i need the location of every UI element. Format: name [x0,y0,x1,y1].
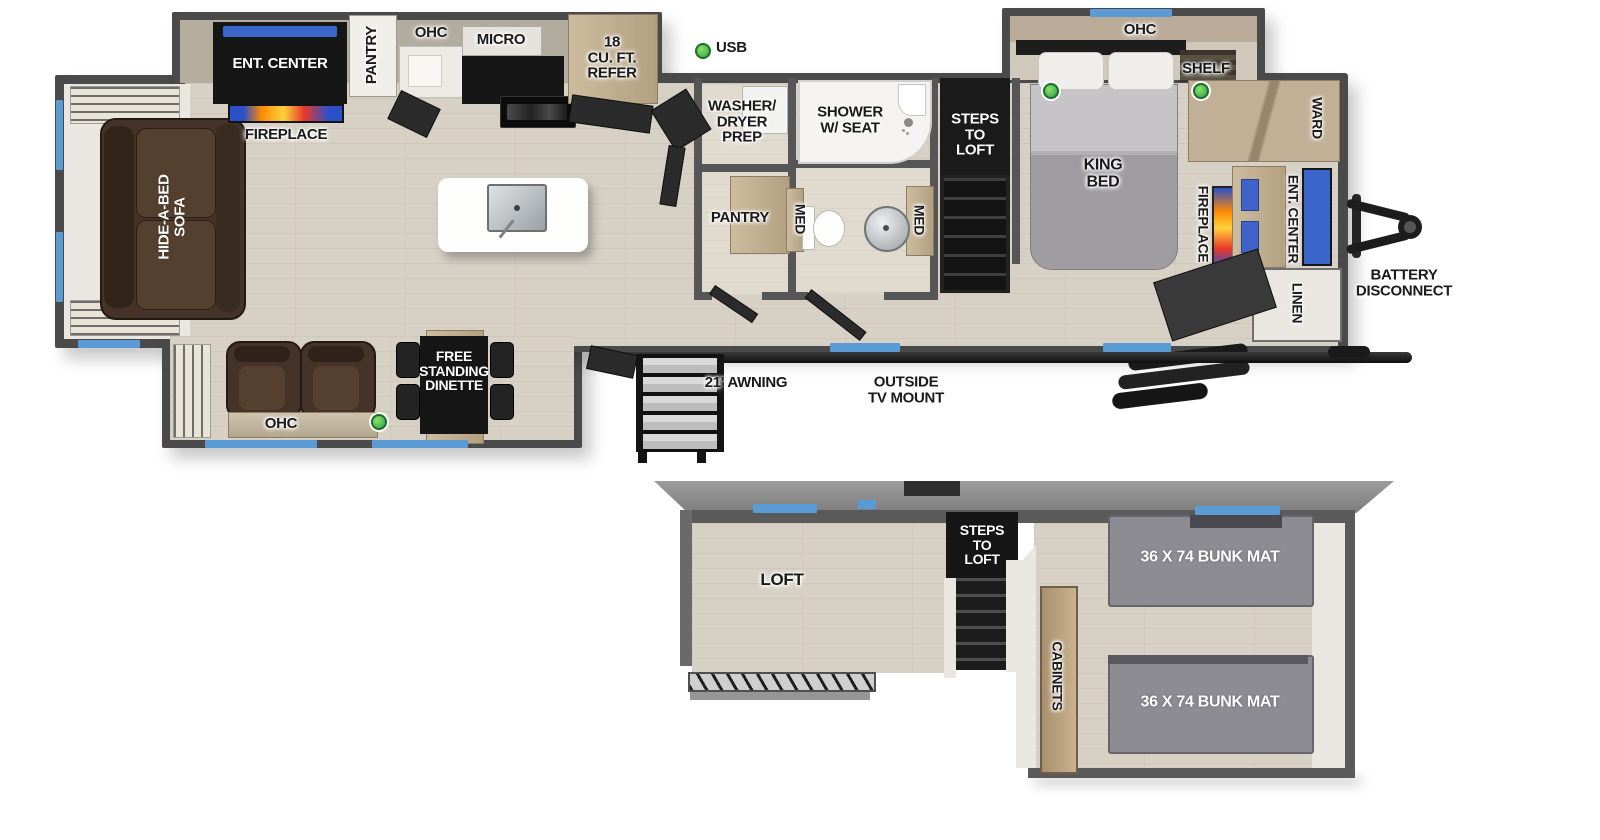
pantry-label-kitchen: PANTRY [364,26,380,84]
cooktop-burners [507,104,567,120]
steps-treads-main [944,178,1006,290]
ward-label: WARD [1310,97,1325,139]
steps-to-loft-upper-label: STEPS TO LOFT [960,523,1004,567]
sofa-armrest [216,124,240,312]
recliner-left-headrest [234,346,290,362]
bedroom-usb-dot-left [1043,83,1059,99]
window-dinette-2 [372,440,468,448]
usb-dot [695,43,711,59]
micro-label: MICRO [477,32,526,48]
hide-a-bed-sofa-label: HIDE-A-BED SOFA [156,174,187,259]
bath-wall-bottom-2 [762,292,808,300]
bedroom-tv [1302,168,1332,266]
dinette-chair-4 [490,384,514,420]
toilet-bowl [813,210,845,247]
stairwell-wall-right [1006,560,1034,672]
recliner-left [226,341,302,419]
recliner-left-seat [239,366,285,410]
loft-railing [688,672,876,692]
bunk-right-wall [1345,510,1355,778]
kitchen-ohc-label: OHC [415,25,447,41]
loft-left-wall [680,510,692,666]
cabinets-label: CABINETS [1050,641,1065,710]
bedroom-wall [1012,78,1020,264]
dinette-ohc-label: OHC [265,416,297,432]
king-ohc-label: OHC [1124,22,1156,38]
recliner-right-seat [313,366,359,410]
bedroom-usb-dot-right [1193,83,1209,99]
bedroom-fireplace-label: FIREPLACE [1196,186,1211,263]
bunk-wall-right [1312,523,1345,768]
washer-dryer-label: WASHER/ DRYER PREP [708,99,776,146]
shower-seat [898,84,926,116]
bedroom-ent-center-label: ENT. CENTER [1286,175,1301,264]
dinette-chair-3 [490,342,514,378]
kitchen-sink-basin [408,55,442,87]
entry-steps-foot-right [697,452,706,463]
bunk-mat-top-headrest [1190,515,1282,528]
fireplace-insert [228,104,344,123]
loft-roof-hatch [904,481,960,496]
kitchen-island [438,178,588,252]
bath-sink-drain [883,225,889,231]
window-kingslide-top [1090,9,1172,17]
linen-label: LINEN [1290,283,1305,324]
cooktop [500,96,576,128]
dresser-door-blue-1 [1241,179,1259,211]
loft-label: LOFT [760,571,803,589]
bunk-bottom-label: 36 X 74 BUNK MAT [1141,695,1280,712]
entry-steps-main [636,354,724,452]
bath-wall-bottom-3 [884,292,938,300]
window-rear-bottom [78,340,140,348]
stairwell-steps-down [956,578,1006,670]
steps-to-loft-main-label: STEPS TO LOFT [951,112,999,159]
bath-sink [864,206,910,252]
battery-disconnect-label: BATTERY DISCONNECT [1356,267,1452,298]
bunk-window [1195,506,1280,515]
shower-head-icon [904,118,913,127]
hitch-coupler [1398,215,1422,239]
stairwell-wall-left [944,578,956,678]
bunk-mat-bottom-headrest [1108,655,1308,664]
island-sink-drain [514,205,520,211]
med-right-label: MED [912,205,927,235]
hitch-coupler-inner [1404,221,1416,233]
med-left-label: MED [793,204,808,234]
ent-center-label: ENT. CENTER [232,56,327,72]
dinette-ohc [228,412,378,438]
bunk-top-label: 36 X 74 BUNK MAT [1141,550,1280,567]
dinette-blinds [173,344,211,438]
dinette-chair-2 [396,384,420,420]
window-bottom-bedroom [1103,343,1171,352]
dinette-chair-1 [396,342,420,378]
sofa-back-cushions [104,126,134,308]
loft-floor [692,523,948,673]
tv-mount-label: OUTSIDE TV MOUNT [868,374,944,405]
shelf-label: SHELF [1182,61,1230,77]
recliner-right [300,341,376,419]
wd-pantry-divider [694,164,796,172]
shower-label: SHOWER W/ SEAT [817,104,883,135]
window-rear-left-1 [56,100,63,170]
loft-railing-base [690,692,870,700]
usb-label: USB [716,40,747,56]
island-sink [487,184,547,232]
floorplan-canvas: HIDE-A-BED SOFA ENT. CENTER FIREPLACE PA… [0,0,1600,840]
window-bottom-bath [830,343,900,352]
island-faucet [499,219,515,238]
loft-window-mid [858,500,876,509]
awning-label: 21' AWNING [705,375,788,391]
loft-window-left [753,504,817,513]
kitchen-sink-cabinet [399,46,463,98]
window-rear-left-2 [56,232,63,302]
front-bumper [1328,346,1370,358]
dinette-usb-dot [371,414,387,430]
refer-label: 18 CU. FT. REFER [587,35,636,82]
entry-steps-foot-left [638,452,647,463]
pillow-right [1108,52,1174,90]
window-dinette-1 [205,440,317,448]
recliner-right-headrest [308,346,364,362]
pantry-label-bath: PANTRY [711,210,769,226]
dinette-label: FREE STANDING DINETTE [419,349,489,393]
king-bed-label: KING BED [1084,157,1123,190]
tv-icon [223,26,337,37]
fireplace-label: FIREPLACE [245,127,327,143]
